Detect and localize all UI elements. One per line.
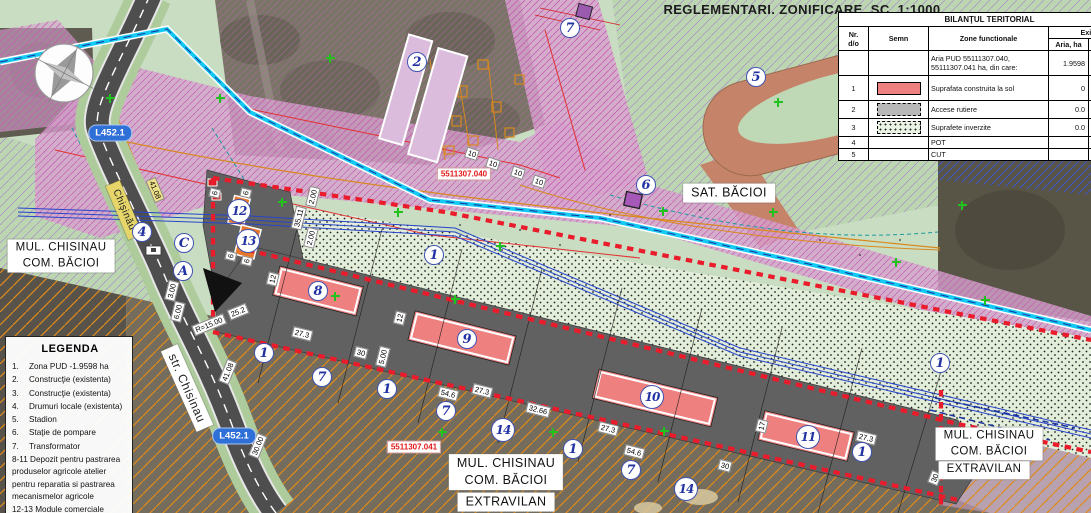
zone-marker-6: 6: [636, 175, 656, 195]
legend-item: 4.Drumuri locale (existenta): [12, 400, 128, 413]
zone-marker-9: 9: [457, 329, 477, 349]
legend-item-number: 2.: [12, 373, 29, 386]
road-badge-top: L452.1: [88, 125, 132, 142]
legend-title: LEGENDA: [12, 343, 128, 355]
region-label-left-line1: MUL. CHISINAU: [16, 240, 107, 256]
bus-stop-icon: [146, 246, 161, 255]
legend-panel: LEGENDA 1.Zona PUD -1.9598 ha2.Construcţ…: [5, 336, 133, 513]
pump-station: [624, 191, 643, 208]
cell-aria: 0: [1049, 76, 1089, 101]
zone-marker-14: 14: [674, 477, 698, 501]
zone-marker-C: C: [174, 233, 194, 253]
legend-item-text: Zona PUD -1.9598 ha: [29, 360, 128, 373]
cell-swatch: [869, 51, 929, 76]
zone-marker-7: 7: [436, 401, 456, 421]
legend-item-number: 1.: [12, 360, 29, 373]
zone-marker-8: 8: [308, 281, 328, 301]
region-label-left: MUL. CHISINAU COM. BĂCIOI: [8, 239, 115, 272]
legend-item: 3.Construcţie (existenta): [12, 387, 128, 400]
grid-cross-icon: [438, 428, 447, 437]
zone-marker-7: 7: [312, 367, 332, 387]
cell-zone: Suprafete inverzite: [929, 119, 1049, 137]
zone-marker-10: 10: [640, 385, 664, 409]
grid-cross-icon: [981, 296, 990, 305]
region-label-left-line2: COM. BĂCIOI: [16, 256, 107, 272]
zone-marker-7: 7: [621, 460, 641, 480]
legend-item-text: Transformator: [29, 440, 128, 453]
legend-item: 6.Staţie de pompare: [12, 426, 128, 439]
cell-swatch: [869, 101, 929, 119]
region-label-bottom: MUL. CHISINAU COM. BĂCIOI: [449, 454, 563, 490]
legend-item: 2.Construcţie (existenta): [12, 373, 128, 386]
region-label-bottom-line2: COM. BĂCIOI: [457, 472, 555, 489]
legend-item-number: 4.: [12, 400, 29, 413]
zone-marker-11: 11: [796, 425, 820, 449]
grid-cross-icon: [660, 427, 669, 436]
cell-zone: Suprafata construita la sol: [929, 76, 1049, 101]
cell-zone: POT: [929, 137, 1049, 149]
cell-aria: [1049, 149, 1089, 161]
zone-marker-1: 1: [563, 439, 583, 459]
zone-marker-14: 14: [491, 418, 515, 442]
grid-cross-icon: [769, 208, 778, 217]
cell-nr: 1: [839, 76, 869, 101]
grid-cross-icon: [394, 208, 403, 217]
legend-item-number: 3.: [12, 387, 29, 400]
region-label-bottom-line1: MUL. CHISINAU: [457, 455, 555, 472]
grid-cross-icon: [549, 428, 558, 437]
legend-item-number: 6.: [12, 426, 29, 439]
grid-cross-icon: [659, 207, 668, 216]
legend-item-text: Staţie de pompare: [29, 426, 128, 439]
zone-marker-1: 1: [930, 353, 950, 373]
grid-cross-icon: [331, 292, 340, 301]
cell-swatch: [869, 137, 929, 149]
extravilan-label-bottom: EXTRAVILAN: [458, 493, 555, 512]
cell-aria: 0.0: [1049, 119, 1089, 137]
region-label-right: MUL. CHISINAU COM. BĂCIOI: [936, 427, 1043, 460]
territorial-balance-table: BILANŢUL TERITORIAL Nr.d/o Semn Zone fun…: [838, 12, 1091, 161]
grid-cross-icon: [496, 242, 505, 251]
zone-marker-13: 13: [236, 229, 260, 253]
zone-marker-A: A: [173, 261, 193, 281]
zone-marker-7: 7: [560, 18, 580, 38]
legend-item-text: Drumuri locale (existenta): [29, 400, 128, 413]
dots-swatch: [877, 121, 921, 134]
legend-item: 7.Transformator: [12, 440, 128, 453]
col-header-semn: Semn: [869, 27, 929, 51]
legend-item-paragraph: 8-11 Depozit pentru pastrarea produselor…: [12, 454, 128, 503]
legend-item-text: Construcţie (existenta): [29, 387, 128, 400]
zone-marker-4: 4: [132, 222, 152, 242]
legend-items: 1.Zona PUD -1.9598 ha2.Construcţie (exis…: [12, 360, 128, 513]
zone-marker-12: 12: [227, 199, 251, 223]
legend-item-text: Construcţie (existenta): [29, 373, 128, 386]
cell-zone: Accese rutiere: [929, 101, 1049, 119]
grid-cross-icon: [892, 258, 901, 267]
grid-cross-icon: [326, 54, 335, 63]
col-header-nr: Nr.d/o: [839, 27, 869, 51]
col-header-aria: Aria, ha: [1049, 39, 1089, 51]
cell-zone: CUT: [929, 149, 1049, 161]
cell-swatch: [869, 76, 929, 101]
cell-nr: 5: [839, 149, 869, 161]
cell-aria: 0.0: [1049, 101, 1089, 119]
cell-zone: Aria PUD 55111307.040, 55111307.041 ha, …: [929, 51, 1049, 76]
cell-nr: [839, 51, 869, 76]
col-header-existent: Existent: [1049, 27, 1091, 39]
cell-nr: 4: [839, 137, 869, 149]
road-badge-bottom: L452.1: [212, 428, 256, 445]
grid-cross-icon: [451, 295, 460, 304]
legend-item: 5.Stadion: [12, 413, 128, 426]
gray-swatch: [877, 103, 921, 116]
region-label-right-line1: MUL. CHISINAU: [944, 428, 1035, 444]
legend-item-number: 5.: [12, 413, 29, 426]
grid-cross-icon: [216, 94, 225, 103]
cell-aria: 1.9598: [1049, 51, 1089, 76]
grid-cross-icon: [774, 98, 783, 107]
legend-item: 1.Zona PUD -1.9598 ha: [12, 360, 128, 373]
zone-marker-2: 2: [407, 52, 427, 72]
cell-aria: [1049, 137, 1089, 149]
parcel-number-top: 5511307.040: [437, 168, 491, 181]
region-label-right-line2: COM. BĂCIOI: [944, 444, 1035, 460]
zone-marker-1: 1: [424, 245, 444, 265]
zoning-map-canvas: REGLEMENTARI. ZONIFICARE. SC. 1:1000 MUL…: [0, 0, 1091, 513]
grid-cross-icon: [958, 201, 967, 210]
cell-nr: 3: [839, 119, 869, 137]
cell-swatch: [869, 149, 929, 161]
cell-swatch: [869, 119, 929, 137]
zone-marker-5: 5: [746, 67, 766, 87]
grid-cross-icon: [106, 94, 115, 103]
village-label: SAT. BĂCIOI: [683, 184, 775, 203]
grid-cross-icon: [278, 198, 287, 207]
parcel-number-bottom: 5511307.041: [387, 441, 441, 454]
legend-item-number: 7.: [12, 440, 29, 453]
zone-marker-1: 1: [852, 442, 872, 462]
col-header-zone: Zone functionale: [929, 27, 1049, 51]
zone-marker-1: 1: [377, 379, 397, 399]
zone-marker-1: 1: [254, 343, 274, 363]
cell-nr: 2: [839, 101, 869, 119]
table-title: BILANŢUL TERITORIAL: [839, 13, 1091, 27]
red-swatch: [877, 82, 921, 95]
legend-item-paragraph: 12-13 Module comerciale pentru vânzarea …: [12, 504, 128, 513]
extravilan-label-right: EXTRAVILAN: [939, 461, 1030, 479]
legend-item-text: Stadion: [29, 413, 128, 426]
